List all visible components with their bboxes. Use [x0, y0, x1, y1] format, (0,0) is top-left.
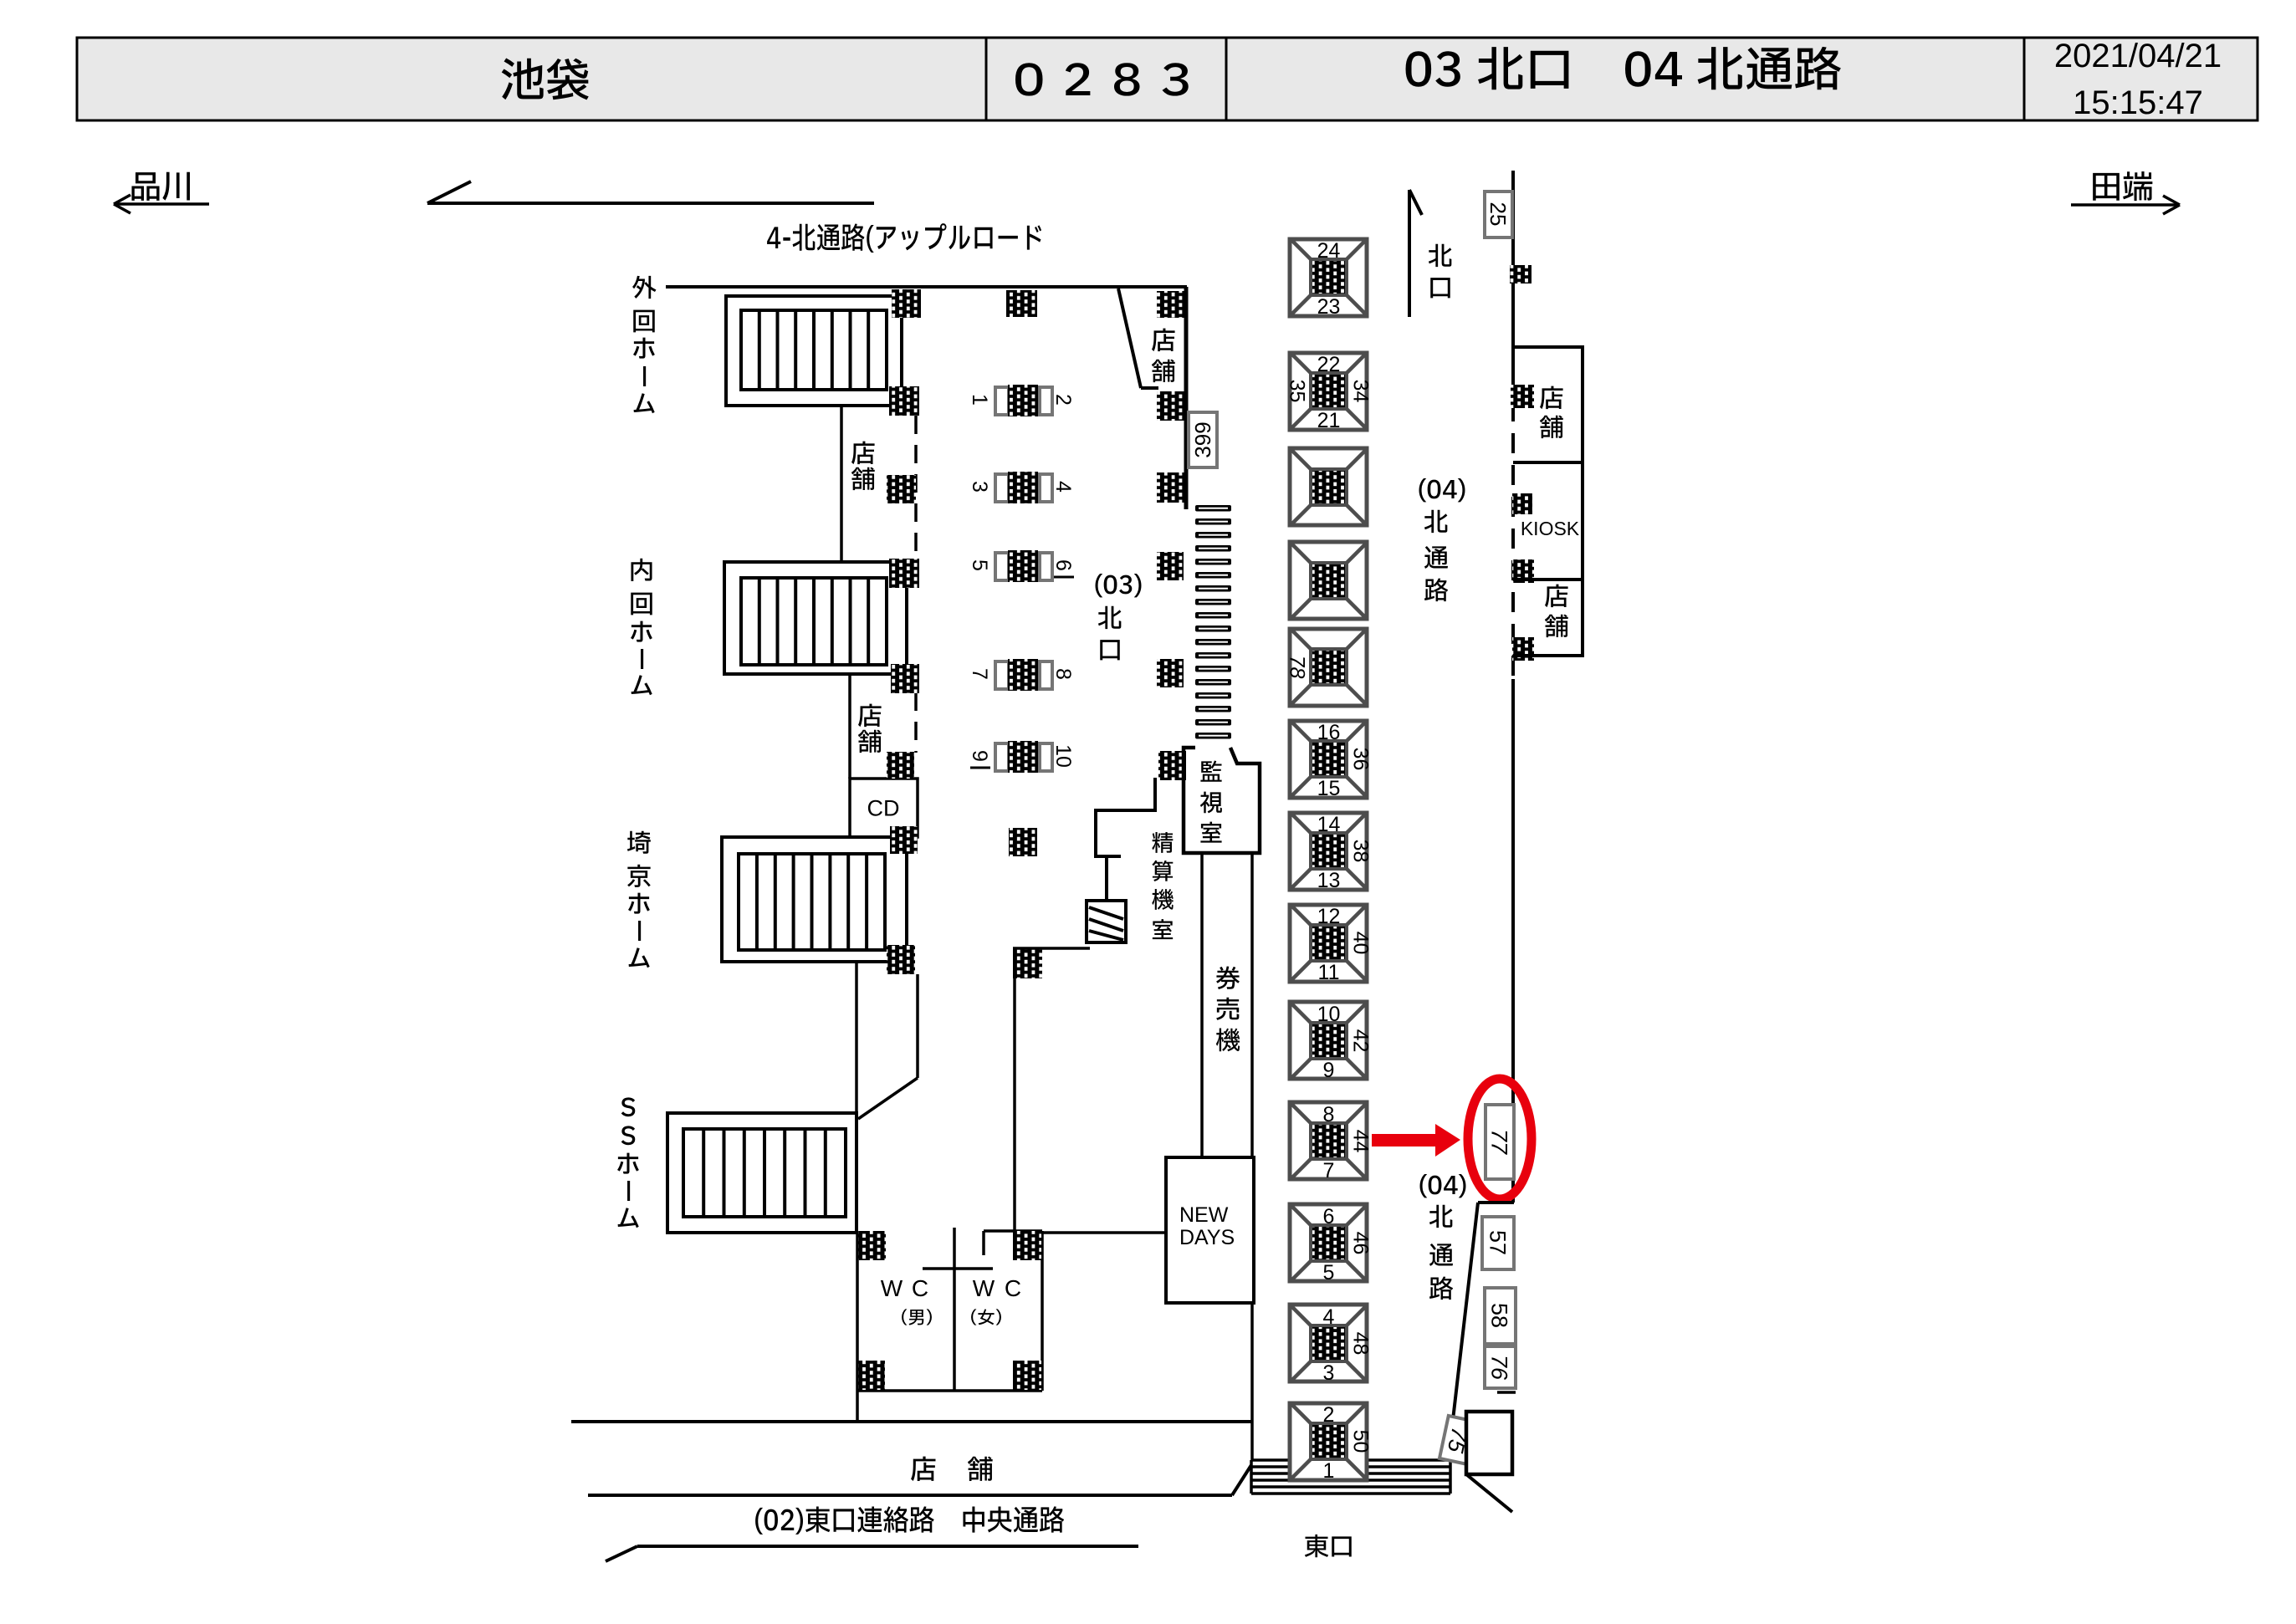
svg-text:2021/04/21: 2021/04/21	[2054, 38, 2222, 74]
svg-text:22: 22	[1317, 353, 1341, 376]
svg-text:8: 8	[1051, 668, 1075, 680]
svg-text:36: 36	[1348, 748, 1372, 771]
svg-text:15: 15	[1317, 777, 1341, 800]
svg-text:15:15:47: 15:15:47	[2073, 84, 2203, 121]
svg-text:399: 399	[1190, 421, 1215, 457]
svg-text:8: 8	[1323, 1103, 1335, 1126]
svg-text:34: 34	[1348, 380, 1372, 403]
svg-text:44: 44	[1348, 1130, 1372, 1153]
svg-text:14: 14	[1317, 813, 1341, 836]
svg-text:C: C	[1005, 1275, 1021, 1301]
svg-text:5: 5	[968, 559, 991, 571]
svg-text:50: 50	[1348, 1430, 1372, 1453]
svg-text:1: 1	[968, 394, 991, 406]
svg-text:23: 23	[1317, 295, 1341, 319]
svg-text:W: W	[973, 1275, 995, 1301]
svg-text:48: 48	[1348, 1332, 1372, 1356]
svg-text:13: 13	[1317, 869, 1341, 892]
svg-text:3: 3	[968, 481, 991, 493]
svg-text:35: 35	[1285, 380, 1308, 403]
svg-text:11: 11	[1318, 961, 1340, 984]
svg-text:4: 4	[1323, 1305, 1335, 1329]
svg-text:46: 46	[1348, 1232, 1372, 1255]
svg-text:1: 1	[1323, 1459, 1335, 1483]
svg-text:9: 9	[1323, 1059, 1335, 1082]
svg-text:21: 21	[1317, 409, 1341, 432]
svg-text:2: 2	[1051, 394, 1075, 406]
svg-text:77: 77	[1487, 1129, 1512, 1155]
svg-text:KIOSK: KIOSK	[1521, 518, 1580, 539]
svg-text:25: 25	[1485, 202, 1511, 227]
svg-text:7: 7	[1323, 1159, 1335, 1182]
svg-text:42: 42	[1348, 1029, 1372, 1053]
svg-text:76: 76	[1487, 1355, 1512, 1381]
svg-text:5: 5	[1323, 1261, 1335, 1284]
svg-text:10: 10	[1317, 1003, 1341, 1026]
svg-text:6: 6	[1051, 559, 1075, 571]
svg-text:38: 38	[1348, 840, 1372, 863]
svg-text:58: 58	[1487, 1303, 1512, 1328]
svg-text:W: W	[881, 1275, 903, 1301]
svg-text:4: 4	[1051, 481, 1075, 493]
svg-text:40: 40	[1348, 932, 1372, 955]
svg-text:C: C	[912, 1275, 928, 1301]
svg-text:16: 16	[1317, 721, 1341, 744]
svg-text:DAYS: DAYS	[1179, 1226, 1235, 1249]
svg-text:2: 2	[1323, 1403, 1335, 1427]
svg-text:6: 6	[1323, 1205, 1335, 1228]
svg-text:NEW: NEW	[1179, 1203, 1229, 1227]
svg-text:12: 12	[1317, 905, 1341, 928]
svg-text:57: 57	[1485, 1230, 1511, 1255]
svg-text:9: 9	[968, 750, 991, 762]
svg-text:CD: CD	[867, 796, 900, 821]
svg-text:10: 10	[1051, 744, 1075, 768]
svg-text:7: 7	[968, 668, 991, 680]
svg-text:78: 78	[1285, 656, 1308, 679]
svg-text:24: 24	[1317, 239, 1341, 263]
svg-text:3: 3	[1323, 1361, 1335, 1385]
